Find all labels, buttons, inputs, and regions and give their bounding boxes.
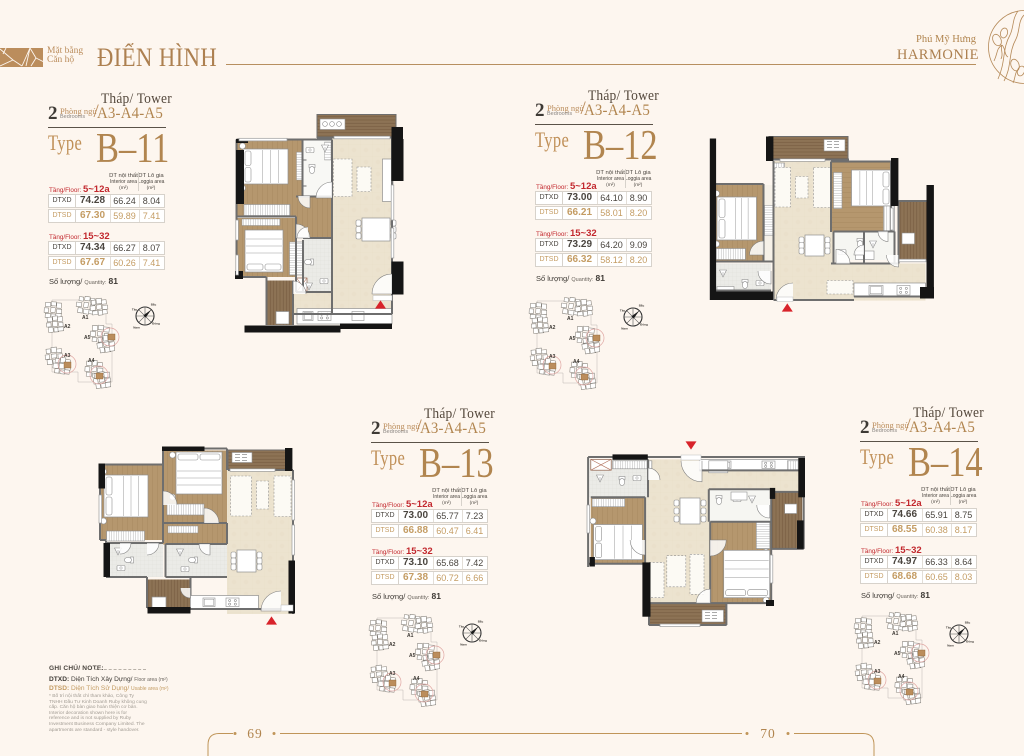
svg-text:A4: A4 [88,358,95,364]
svg-text:Đông: Đông [152,322,160,326]
svg-text:Tây: Tây [459,625,465,629]
svg-text:Bắc: Bắc [965,620,971,625]
svg-text:A1: A1 [892,631,899,637]
svg-text:A4: A4 [413,676,420,682]
svg-text:Bắc: Bắc [478,619,484,624]
svg-text:A3: A3 [64,353,71,359]
svg-text:Tây: Tây [620,309,626,313]
svg-text:A1: A1 [407,633,414,639]
svg-text:A2: A2 [549,325,556,331]
svg-text:A4: A4 [573,359,580,365]
svg-text:Nam: Nam [460,643,467,647]
svg-text:A2: A2 [64,324,71,330]
svg-text:A5: A5 [84,335,91,341]
svg-text:A2: A2 [389,642,396,648]
svg-text:Nam: Nam [133,326,140,330]
svg-text:Đông: Đông [966,640,974,644]
svg-text:Tây: Tây [132,308,138,312]
svg-text:Bắc: Bắc [639,303,645,308]
svg-text:Tây: Tây [946,626,952,630]
svg-text:Bắc: Bắc [151,302,157,307]
svg-text:A4: A4 [898,674,905,680]
svg-text:A5: A5 [894,651,901,657]
svg-text:Đông: Đông [479,639,487,643]
svg-text:Nam: Nam [947,644,954,648]
svg-text:A5: A5 [409,653,416,659]
svg-text:A1: A1 [567,316,574,322]
svg-text:Đông: Đông [640,323,648,327]
svg-text:A3: A3 [549,354,556,360]
svg-text:A2: A2 [874,640,881,646]
svg-text:A1: A1 [82,315,89,321]
svg-text:A3: A3 [389,671,396,677]
svg-text:A3: A3 [874,669,881,675]
svg-text:A5: A5 [569,336,576,342]
svg-text:Nam: Nam [621,327,628,331]
